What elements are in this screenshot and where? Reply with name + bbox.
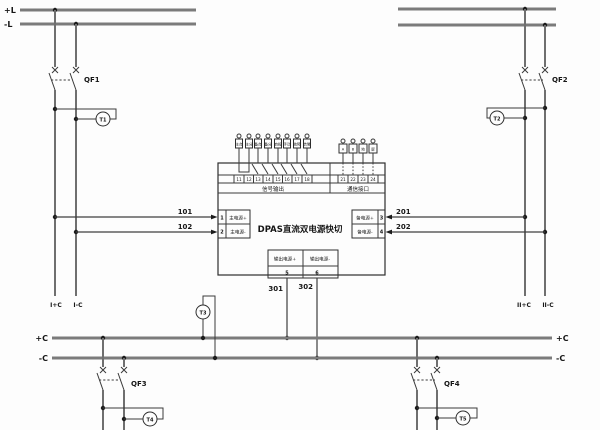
- ctrl-bus-neg-label-left: -C: [39, 354, 48, 363]
- feeder-4: QF4 T5: [411, 336, 477, 430]
- t5-label: T5: [460, 417, 467, 423]
- feeder-1-neg-label: I-C: [73, 302, 83, 309]
- signal-tag-2: 主分: [245, 142, 253, 147]
- output-plus-num: 5: [285, 271, 289, 277]
- wire-301-label: 301: [268, 285, 283, 293]
- main-plus-label: 主电源+: [229, 215, 247, 222]
- wire-201-label: 201: [396, 208, 411, 216]
- wire-302-label: 302: [298, 283, 313, 291]
- feeder-1: QF1 T1 I+C I-C: [49, 8, 116, 309]
- output-minus-label: 输出电源-: [310, 256, 330, 263]
- signal-terminal-1: 11: [236, 177, 242, 182]
- comm-terminal-2: 22: [350, 177, 356, 182]
- device-name: DPAS直流双电源快切: [258, 224, 343, 235]
- signal-tag-1: 主合: [235, 142, 243, 147]
- device-box: 主合 主分 备合 备分 自投 手动 故障 告警 11 12 13 14 15 1…: [218, 134, 385, 278]
- ctrl-bus-neg-label-right: -C: [556, 354, 565, 363]
- monitor-t5: T5: [415, 406, 477, 425]
- backup-minus-label: 备电源-: [357, 229, 373, 236]
- qf1-label: QF1: [84, 76, 100, 84]
- wire-301-302: 301 302: [268, 278, 319, 360]
- main-plus-num: 1: [220, 216, 224, 222]
- output-plus-label: 输出电源+: [274, 256, 296, 263]
- dual-power-schematic: +L -L QF1 T1 I+C I-C: [0, 0, 600, 430]
- bus-top-left: +L -L: [4, 6, 196, 29]
- signal-terminal-3: 13: [255, 177, 261, 182]
- signal-terminal-8: 18: [304, 177, 310, 182]
- signal-tag-3: 备合: [254, 142, 262, 147]
- signal-tag-5: 自投: [274, 142, 282, 147]
- schematic-canvas: +L -L QF1 T1 I+C I-C: [0, 0, 600, 430]
- feeder-2-neg-label: II-C: [542, 302, 554, 309]
- comm-section-label: 通信接口: [347, 185, 369, 193]
- breaker-qf2: QF2: [519, 67, 568, 90]
- breaker-qf3: QF3: [97, 367, 147, 390]
- t3-label: T3: [200, 311, 207, 317]
- comm-terminal-3: 23: [360, 177, 366, 182]
- signal-tag-6: 手动: [283, 142, 291, 147]
- ctrl-bus-pos-label-left: +C: [35, 334, 48, 343]
- feeder-2: QF2 T2 II+C II-C: [487, 7, 568, 309]
- feeder-2-pos-label: II+C: [517, 302, 531, 309]
- output-minus-num: 6: [315, 271, 319, 277]
- qf4-label: QF4: [444, 380, 460, 388]
- signal-terminal-6: 16: [284, 177, 290, 182]
- bus-top-left-neg-label: -L: [4, 20, 12, 29]
- backup-plus-num: 3: [380, 216, 384, 222]
- signal-tag-8: 告警: [303, 142, 311, 147]
- main-minus-num: 2: [220, 230, 224, 236]
- backup-plus-label: 备电源+: [356, 215, 374, 222]
- monitor-t3: T3: [196, 296, 217, 360]
- feeder-3: QF3 T4: [97, 336, 163, 430]
- main-minus-label: 主电源-: [230, 229, 246, 236]
- signal-terminal-4: 14: [265, 177, 271, 182]
- signal-tag-7: 故障: [293, 142, 301, 147]
- qf2-label: QF2: [552, 76, 568, 84]
- monitor-t2: T2: [487, 106, 547, 125]
- signal-terminal-5: 15: [275, 177, 281, 182]
- monitor-t4: T4: [101, 406, 163, 426]
- ctrl-bus-pos-label-right: +C: [556, 334, 569, 343]
- comm-tag-1: A: [342, 148, 345, 152]
- comm-tag-2: B: [352, 148, 355, 152]
- t4-label: T4: [147, 418, 154, 424]
- t1-label: T1: [100, 118, 107, 124]
- wire-101-label: 101: [178, 208, 193, 216]
- feeder-1-pos-label: I+C: [50, 302, 62, 309]
- signal-section-label: 信号输出: [262, 185, 284, 193]
- monitor-t1: T1: [53, 107, 116, 126]
- bus-top-left-pos-label: +L: [4, 6, 16, 15]
- signal-terminal-7: 17: [294, 177, 300, 182]
- comm-tag-4: 屏: [371, 148, 375, 152]
- comm-tag-3: 地: [361, 147, 365, 152]
- bus-top-right: [398, 9, 556, 25]
- comm-terminal-4: 24: [370, 177, 376, 182]
- signal-terminal-2: 12: [246, 177, 252, 182]
- bus-control: +C -C +C -C: [35, 334, 568, 363]
- breaker-qf1: QF1: [49, 67, 100, 90]
- comm-terminal-1: 21: [340, 177, 346, 182]
- wire-102-label: 102: [178, 223, 193, 231]
- wire-201-202: 201 202: [386, 208, 548, 234]
- wire-101-102: 101 102: [53, 208, 218, 234]
- signal-tag-4: 备分: [264, 142, 272, 147]
- breaker-qf4: QF4: [411, 367, 460, 390]
- backup-minus-num: 4: [380, 230, 384, 236]
- qf3-label: QF3: [131, 380, 147, 388]
- t2-label: T2: [494, 117, 501, 123]
- wire-202-label: 202: [396, 223, 411, 231]
